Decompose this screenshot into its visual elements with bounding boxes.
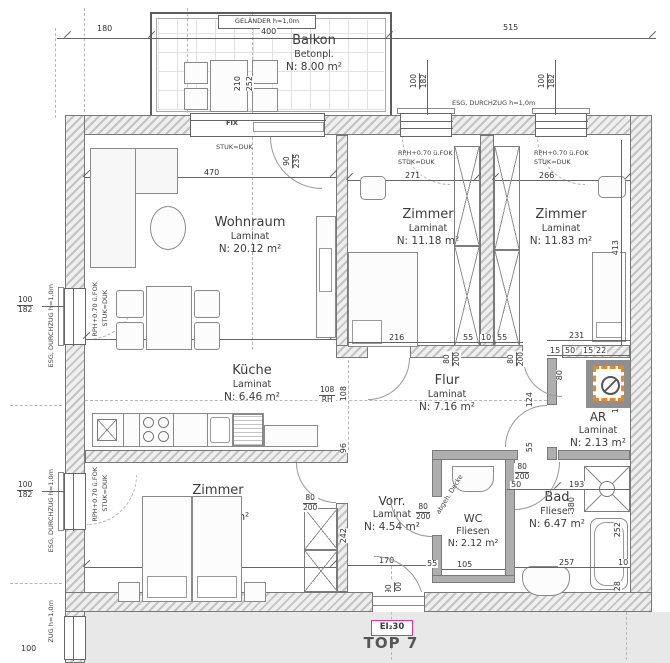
wardrobe [494,146,520,250]
threshold-line [373,605,424,606]
wardrobe [304,550,338,592]
room-name: WC [445,512,501,525]
wall-zimmer-zimmer [480,135,494,347]
dim-105: 105 [456,561,473,569]
room-label-zimmer-mid: Zimmer Laminat N: 11.18 m² [396,207,460,247]
room-floor: Laminat [568,425,628,436]
dim-271: 271 [404,172,421,180]
dining-chair [116,322,144,350]
axis-line [10,405,62,406]
bathtub [590,518,628,590]
room-area: N: 2.13 m² [568,437,628,449]
room-area: N: 11.83 m² [528,235,594,247]
door-size-label: 80200 [514,463,530,481]
hob-burner [143,431,154,442]
pillow [596,322,622,338]
dim-50: 50 [510,481,522,489]
dim-252: 252 [614,522,622,537]
window-glass-line [536,128,588,129]
dining-chair [194,322,220,350]
counter-divider [123,414,124,446]
dining-table [146,286,192,350]
entry-threshold [372,592,425,612]
sink-drainer [233,414,263,446]
rph-label: RPH+0.70 ü.FOK [534,150,589,157]
room-floor: Betonpl. [278,49,350,60]
room-name: Balkon [278,33,350,48]
dim-470-top: 470 [203,169,220,177]
wall-wc-bottom [432,575,515,583]
wall-kueche-bottom [85,450,348,463]
dim-96: 96 [340,443,348,453]
washing-machine[interactable] [593,366,624,401]
esg-label: ESG, DURCHZUG h=1,0m [48,469,55,552]
room-area: N: 20.12 m² [203,243,297,255]
wardrobe [454,246,480,346]
axis-line [55,28,56,118]
balcony-chair [252,88,278,112]
nightstand [244,582,266,602]
dim-50: 50 [564,347,576,355]
counter-extension [264,425,318,447]
room-label-balkon: Balkon Betonpl. N: 8.00 m² [278,33,350,73]
floor-plan: GELÄNDER h=1,0m 210 252 180 400 515 [0,0,670,663]
pillow [197,576,237,598]
window-glass-line [536,121,588,122]
window-stair [64,616,86,660]
dim-100: 100 [20,645,37,653]
room-name: Wohnraum [203,215,297,230]
axis-line [348,360,349,450]
window-glass-line [73,617,74,661]
sofa [90,148,136,268]
nightstand [118,582,140,602]
room-name: Küche [220,363,284,378]
wall-left [65,115,85,663]
dim-242: 242 [340,528,348,543]
fix-label: FIX [226,120,238,127]
hob-burner [158,417,169,428]
window-size-label: 100182 [16,481,34,499]
door-size-label: 80200 [302,494,318,512]
axis-line [10,583,62,584]
dining-chair [116,290,144,318]
room-area: N: 8.00 m² [278,61,350,73]
room-name: Flur [415,373,479,388]
dim-413: 413 [612,240,620,255]
wall-wohnraum-zimmer [336,135,348,347]
door-size-label: 80200 [507,351,525,367]
dim-28: 28 [614,581,622,591]
esg-partial-label: ZUG h=1,0m [48,600,55,643]
dim-210: 210 [234,76,242,91]
dim-55: 55 [426,560,438,568]
room-label-flur: Flur Laminat N: 7.16 m² [415,373,479,413]
kitchen-sink [210,417,230,443]
door-size-label: 80200 [443,351,461,367]
room-label-zimmer-right: Zimmer Laminat N: 11.83 m² [528,207,594,247]
bad-washbasin [522,566,570,596]
wall-bad-top-seg [558,450,630,460]
dim-line [348,342,523,343]
room-name: Zimmer [528,207,594,222]
room-label-kueche: Küche Laminat N: 6.46 m² [220,363,284,403]
dim-15: 15 [582,347,594,355]
dim-257: 257 [558,559,575,567]
dim-108-rh: 108RH [318,386,336,404]
counter-divider [139,414,140,446]
dim-10: 10 [617,559,629,567]
window-size-label: 100182 [538,72,556,90]
door-size-balcony: 90235 [283,153,301,169]
dim-180: 180 [96,25,113,33]
balcony-chair [184,62,208,84]
window-wohnraum [64,288,86,345]
dining-chair [194,290,220,318]
esg-label: ESG, DURCHZUG h=1,0m [48,284,55,367]
dim-line [547,340,630,341]
stuk-label: STUK=DUK [398,159,435,166]
room-area: N: 6.47 m² [528,518,586,530]
sliding-panel [253,122,324,132]
window-glass-line [73,474,74,531]
dim-line [442,569,505,570]
room-name: Zimmer [396,207,460,222]
wardrobe [304,508,338,550]
balcony-chair [252,60,278,84]
rph-label: RPH+0.70 ü.FOK [398,150,453,157]
room-floor: Fliesen [528,506,586,517]
dim-55: 55 [462,334,474,342]
window-zimmer-bottom [64,473,86,530]
room-label-wohnraum: Wohnraum Laminat N: 20.12 m² [203,215,297,255]
dim-line [507,489,630,490]
cooktop-vent [97,419,117,441]
dim-line [621,140,622,345]
dim-231: 231 [568,332,585,340]
room-floor: Fliesen [445,526,501,537]
wall-ar-left-seg [547,447,557,460]
dim-line-top [57,38,656,39]
wall-bad-top-seg [432,450,518,460]
window-glass-line [191,120,326,121]
dim-22: 22 [595,347,607,355]
window-zimmer-mid [400,113,452,137]
counter-divider [207,414,208,446]
balcony-chair [184,88,208,110]
dim-193: 193 [568,481,585,489]
window-swing-arc [87,475,137,525]
stuk-label: STUK=DUK [534,159,571,166]
dim-400: 400 [260,28,277,36]
washing-machine-drum-icon [601,376,620,395]
dim-tick [64,31,71,38]
wall-wc-left-seg [432,458,442,497]
balcony-door [190,113,325,137]
dim-80: 80 [556,370,564,380]
dim-515: 515 [502,24,519,32]
esg-label: ESG, DURCHZUG h=1,0m [452,100,535,107]
balcony-table [210,60,248,112]
room-floor: Laminat [528,223,594,234]
leader-line [555,60,556,115]
room-area: N: 6.46 m² [220,391,284,403]
coffee-table [150,206,186,250]
chair [360,176,386,200]
wall-right [630,115,652,612]
room-floor: Laminat [396,223,460,234]
dim-15: 15 [549,347,561,355]
dim-tick [649,31,656,38]
dim-266: 266 [538,172,555,180]
wardrobe [494,250,520,346]
dim-line [547,355,630,356]
hob-burner [143,417,154,428]
window-glass-line [401,121,453,122]
window-size-label: 100182 [410,72,428,90]
room-label-wc: WC Fliesen N: 2.12 m² [445,512,501,549]
room-area: N: 11.18 m² [396,235,460,247]
room-area: N: 2.12 m² [445,538,501,549]
door-arc-zimmer-mid [368,358,410,400]
dim-216: 216 [388,334,405,342]
door-arc-ar [505,405,547,447]
dim-108: 108 [340,386,348,401]
window-glass-line [73,289,74,346]
dim-252-balcony: 252 [246,76,254,91]
dim-10: 10 [480,334,492,342]
stuk-label: STUK=DUK [216,144,253,151]
wardrobe [454,146,480,246]
pillow [147,576,187,598]
dim-380: 380 [568,497,576,512]
tv [319,248,332,292]
counter-divider [173,414,174,446]
hob-burner [158,431,169,442]
room-area: N: 7.16 m² [415,401,479,413]
room-floor: Laminat [220,379,284,390]
window-glass-line [401,128,453,129]
room-floor: Laminat [415,389,479,400]
window-zimmer-right [535,113,587,137]
axis-line [84,8,85,112]
dim-55: 55 [496,334,508,342]
axis-line [626,612,627,660]
unit-label: TOP 7 [356,634,426,652]
dim-line [515,567,630,568]
pillow [352,320,382,344]
room-label-ar: AR Laminat N: 2.13 m² [568,410,628,449]
threshold-line [373,596,424,597]
room-floor: Laminat [203,231,297,242]
window-size-label: 100182 [16,296,34,314]
dim-124: 124 [526,392,534,407]
leader-line [427,60,428,115]
door-size-label: 80200 [415,503,431,521]
